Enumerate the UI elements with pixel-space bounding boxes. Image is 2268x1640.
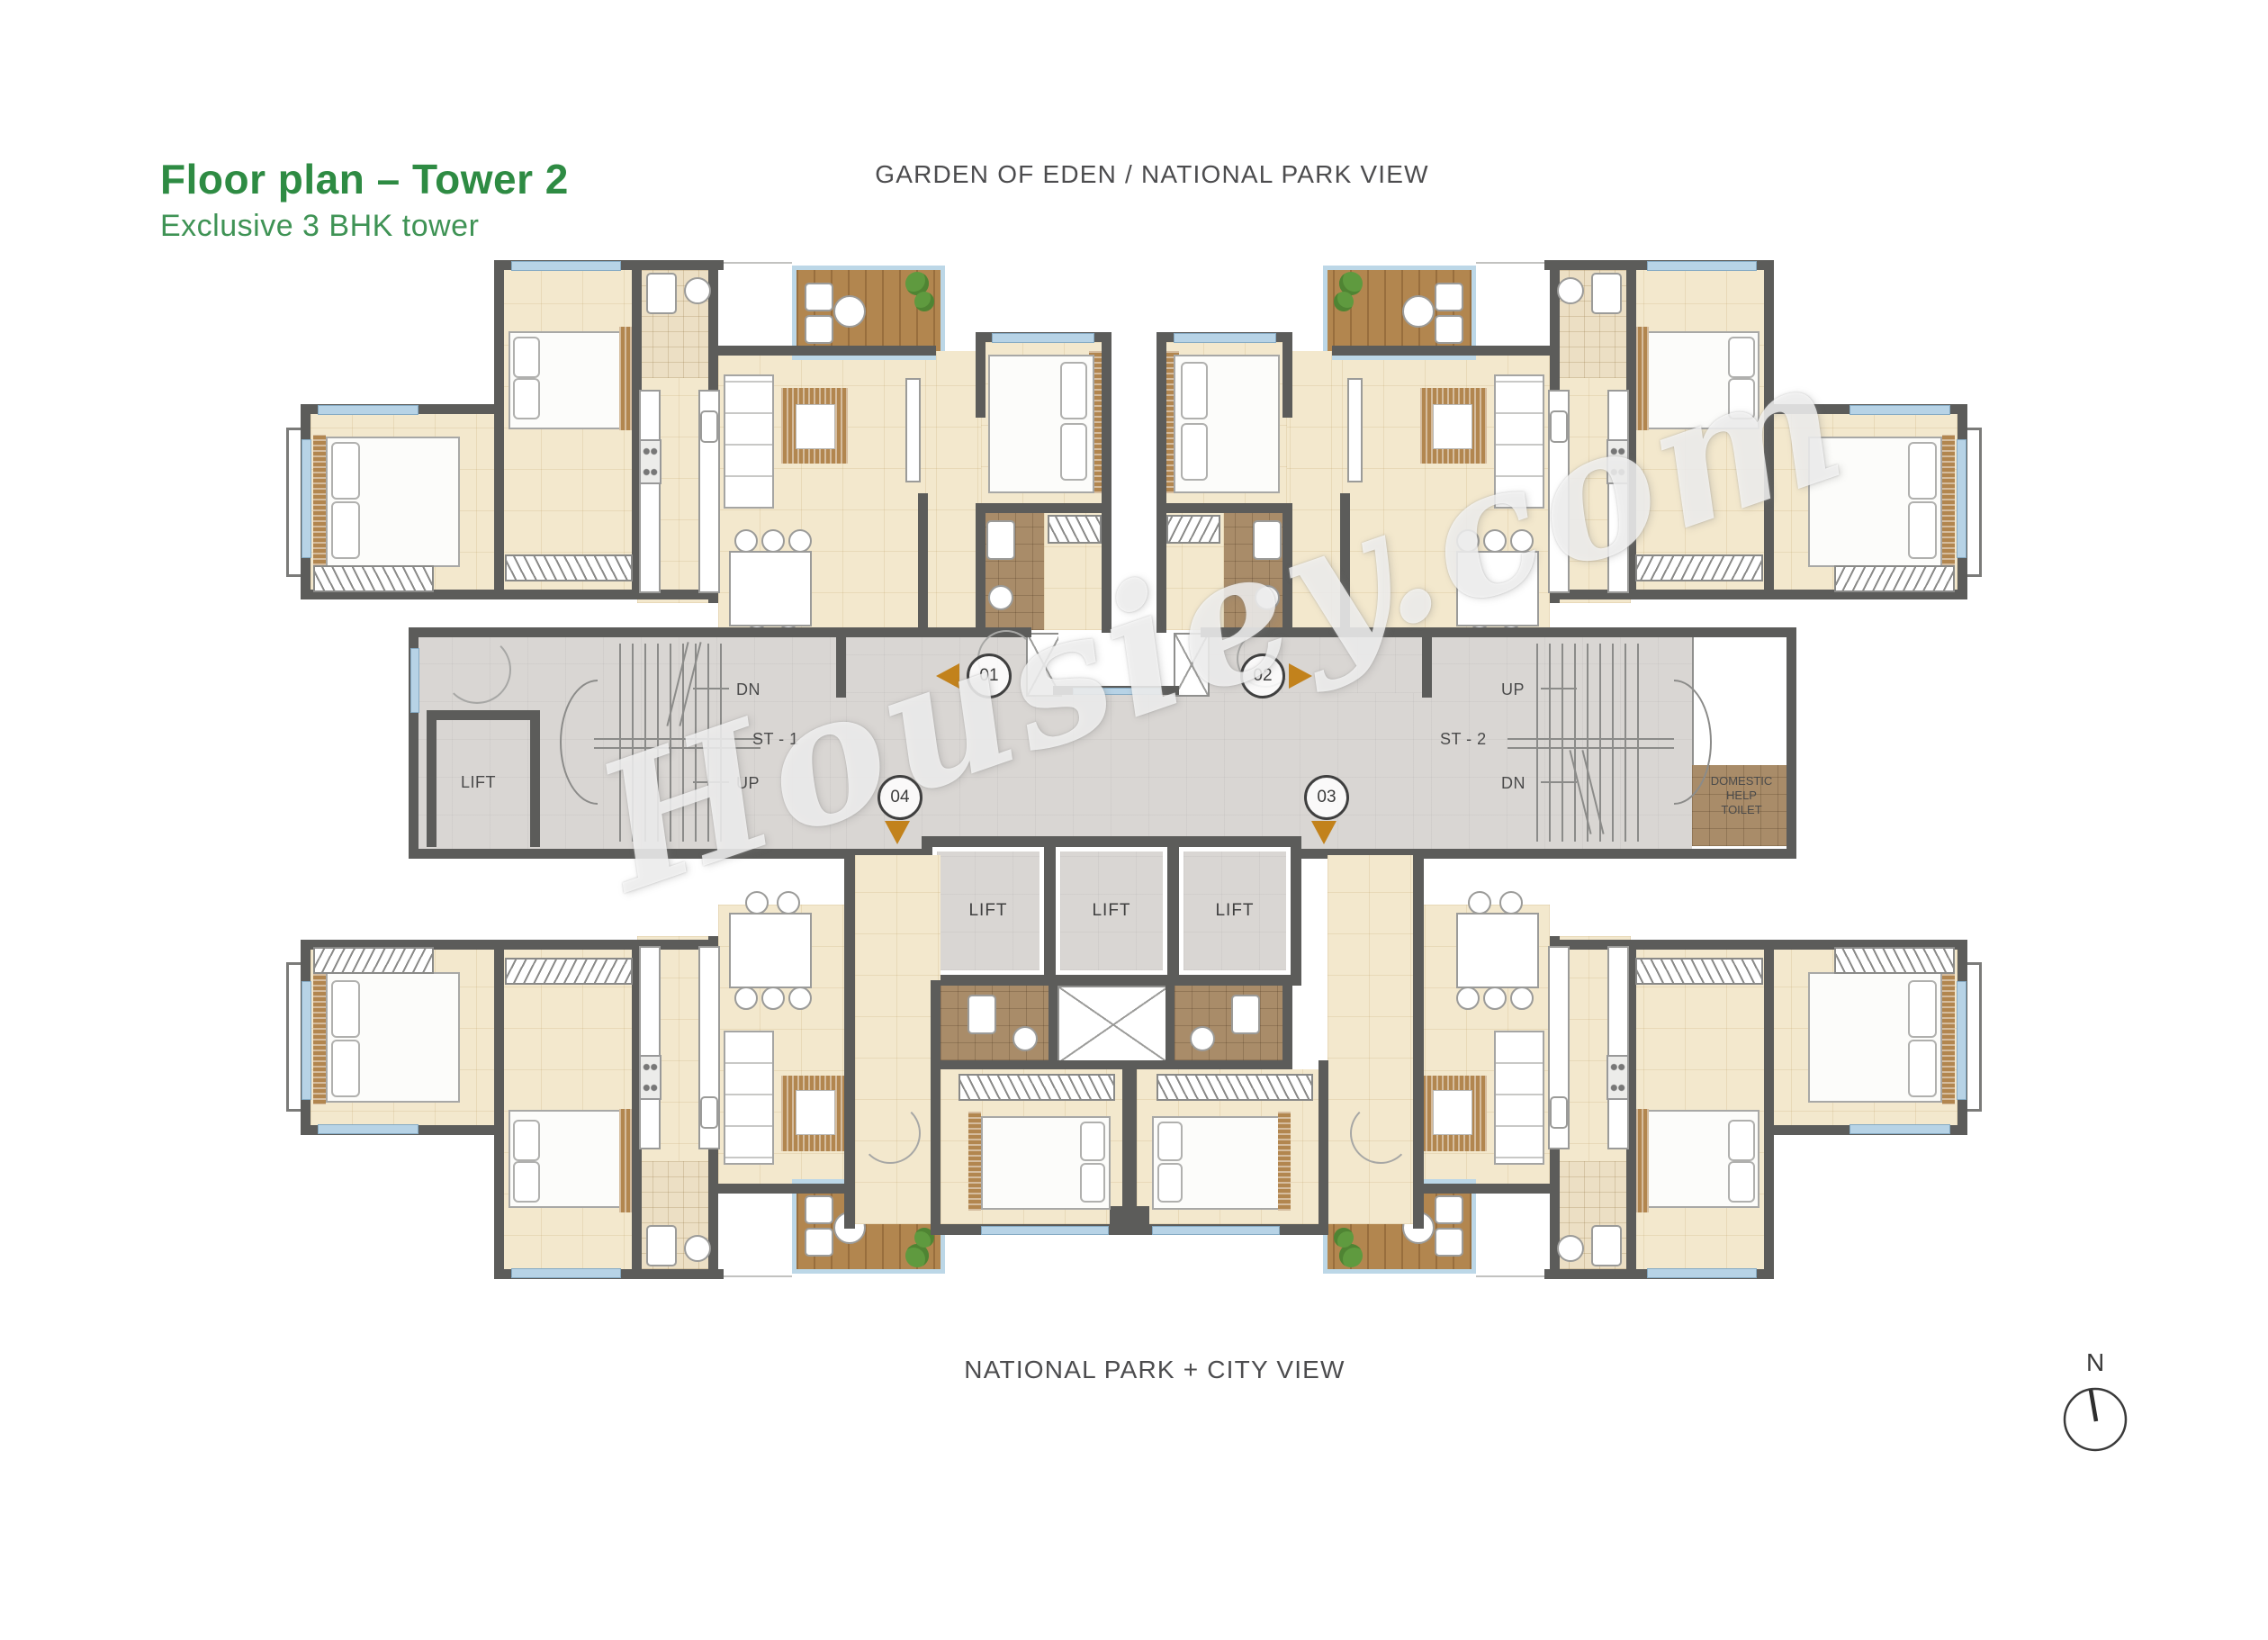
window: [1957, 981, 1966, 1100]
pillow: [331, 501, 360, 559]
sofa: [724, 374, 774, 509]
plant: [1334, 292, 1354, 311]
st1-dn-label: DN: [736, 681, 760, 698]
dining-chair: [1456, 529, 1480, 553]
unit-number: 02: [1253, 666, 1272, 686]
dining-chair: [1456, 987, 1480, 1010]
dining-table: [1456, 551, 1539, 626]
stove: [639, 439, 661, 484]
window: [511, 1268, 621, 1278]
wall: [427, 710, 540, 720]
deck-chair: [1435, 1228, 1463, 1257]
lift-shaft: LIFT: [1056, 847, 1167, 975]
lift-shaft: LIFT: [932, 847, 1044, 975]
deck-chair: [805, 1195, 833, 1224]
wall: [409, 849, 857, 859]
wall: [1764, 260, 1774, 599]
st2-label: ST - 2: [1440, 731, 1487, 747]
wall: [1764, 940, 1774, 1279]
lift-label: LIFT: [1092, 901, 1130, 921]
wall: [836, 627, 846, 698]
dining-chair: [1468, 891, 1491, 915]
window: [1849, 1124, 1950, 1134]
dining-chair: [1499, 891, 1523, 915]
bed-footboard: [1278, 1112, 1291, 1211]
deck-chair: [1435, 315, 1463, 344]
deck-chair: [805, 315, 833, 344]
unit-number: 01: [979, 666, 998, 686]
door-arc: [443, 635, 511, 704]
pillow: [1157, 1163, 1183, 1203]
window: [981, 1226, 1109, 1235]
bed-footboard: [619, 1109, 632, 1212]
unit-arrow-01: [936, 663, 959, 689]
wall: [1282, 332, 1292, 418]
dht-line2: HELP: [1692, 788, 1791, 803]
toilet: [1591, 273, 1622, 314]
window: [318, 1124, 418, 1134]
deck-chair: [805, 283, 833, 311]
sofa: [724, 1031, 774, 1165]
wall: [1550, 590, 1774, 599]
wall: [1786, 627, 1796, 859]
kitchen-sink: [700, 410, 718, 443]
pillow: [1728, 337, 1755, 378]
wardrobe: [1048, 515, 1102, 544]
wardrobe: [1166, 515, 1220, 544]
dining-chair: [1510, 987, 1534, 1010]
wall: [494, 940, 504, 1279]
duct-shaft: [1057, 986, 1169, 1064]
kitchen-counter: [639, 390, 661, 593]
toilet: [1231, 995, 1260, 1034]
dining-chair: [777, 891, 800, 915]
plant: [1334, 1228, 1354, 1248]
pillow: [331, 1040, 360, 1097]
toilet: [986, 520, 1015, 560]
kitchen-sink: [1550, 410, 1568, 443]
pillow: [1181, 362, 1208, 419]
kitchen-counter: [639, 946, 661, 1149]
pillow: [513, 378, 540, 419]
unit-number: 03: [1317, 788, 1336, 807]
stove: [639, 1055, 661, 1100]
wardrobe: [1834, 947, 1955, 974]
toilet: [1253, 520, 1282, 560]
pillow: [331, 980, 360, 1038]
wall: [1156, 503, 1292, 513]
bedroom-floor: [1631, 266, 1768, 594]
wall: [1282, 980, 1292, 1070]
lift-label: LIFT: [968, 901, 1007, 921]
wardrobe: [313, 565, 434, 592]
unit-arrow-04: [885, 821, 910, 844]
bed-headboard: [1942, 974, 1955, 1104]
door-arc: [859, 1103, 921, 1164]
duct-shaft: [1174, 633, 1210, 697]
lift-label: LIFT: [1215, 901, 1254, 921]
toilet-room: [1174, 986, 1282, 1060]
stair-landing: [594, 738, 760, 749]
lift-shaft: LIFT: [1179, 847, 1291, 975]
st2-dn-label: DN: [1501, 775, 1525, 791]
wardrobe: [313, 947, 434, 974]
washbasin: [1255, 585, 1280, 610]
bed-footboard: [619, 327, 632, 430]
bed-footboard: [1636, 327, 1649, 430]
wall: [1332, 346, 1560, 356]
unit-marker-02: 02: [1240, 653, 1285, 698]
coffee-table-top: [1433, 404, 1472, 449]
foyer-floor: [1287, 351, 1332, 635]
deck-table: [1402, 295, 1435, 328]
wardrobe: [1156, 1074, 1313, 1101]
balcony-sill-line: [1476, 1275, 1544, 1277]
dining-chair: [788, 529, 812, 553]
wall: [844, 855, 855, 1229]
window: [1174, 333, 1276, 343]
apartment-wing-bottom-left: [286, 905, 936, 1370]
st1-up-label: UP: [736, 775, 760, 791]
dining-chair: [761, 529, 785, 553]
wall: [1426, 627, 1796, 637]
wall: [494, 590, 718, 599]
stair-arrow: [693, 688, 729, 689]
dht-line1: DOMESTIC: [1692, 774, 1791, 788]
kitchen-counter: [1607, 390, 1629, 593]
foyer-floor: [855, 855, 940, 1224]
wardrobe: [958, 1074, 1115, 1101]
washbasin: [1012, 1026, 1038, 1051]
plant: [914, 292, 934, 311]
wall: [427, 710, 436, 847]
apartment-wing-top-left: [286, 169, 936, 635]
wall: [1422, 627, 1432, 698]
tv-unit: [1347, 378, 1363, 482]
wall: [931, 980, 940, 1070]
dining-table: [1456, 913, 1539, 988]
wardrobe: [1635, 958, 1763, 985]
washbasin: [1557, 1235, 1584, 1262]
wall: [1282, 503, 1292, 635]
window: [1957, 439, 1966, 558]
wall: [1340, 493, 1350, 635]
dining-chair: [734, 529, 758, 553]
toilet: [967, 995, 996, 1034]
dining-chair: [788, 987, 812, 1010]
sofa: [1494, 374, 1544, 509]
unit-marker-03: 03: [1304, 775, 1349, 820]
stair-landing: [1507, 738, 1674, 749]
bedroom-floor: [499, 266, 637, 594]
wardrobe: [505, 554, 633, 581]
wall: [976, 503, 985, 635]
dining-chair: [1510, 529, 1534, 553]
wall: [1201, 627, 1436, 637]
washbasin: [684, 1235, 711, 1262]
kitchen-counter: [1607, 946, 1629, 1149]
pillow: [1908, 1040, 1937, 1097]
wall: [708, 346, 936, 356]
window: [1152, 1226, 1280, 1235]
dining-chair: [1483, 987, 1507, 1010]
tv-unit: [905, 378, 921, 482]
wall: [1156, 332, 1166, 635]
washbasin: [1190, 1026, 1215, 1051]
st1-label: ST - 1: [752, 731, 799, 747]
pillow: [513, 1120, 540, 1161]
unit-marker-04: 04: [877, 775, 922, 820]
toilet: [646, 1225, 677, 1266]
pillow: [1080, 1163, 1105, 1203]
bed-headboard: [313, 974, 326, 1104]
wall: [931, 1060, 940, 1235]
unit-marker-01: 01: [967, 653, 1012, 698]
wall: [1048, 980, 1057, 1070]
washbasin: [684, 277, 711, 304]
pillow: [1908, 501, 1937, 559]
stair-arrow: [693, 781, 729, 783]
window: [301, 439, 311, 558]
floor-plan-page: Floor plan – Tower 2 Exclusive 3 BHK tow…: [0, 0, 2268, 1640]
wall: [494, 260, 504, 599]
pillow: [1080, 1122, 1105, 1161]
coffee-table-top: [1433, 1090, 1472, 1135]
stair-arrow: [1541, 688, 1577, 689]
pillow: [1728, 1161, 1755, 1203]
deck-chair: [805, 1228, 833, 1257]
dining-table: [729, 913, 812, 988]
balcony-sill-line: [724, 262, 792, 264]
wall: [918, 493, 928, 635]
window: [1849, 405, 1950, 415]
unit-arrow-03: [1311, 821, 1336, 844]
unit-arrow-02: [1289, 663, 1312, 689]
door-arc: [1350, 1103, 1411, 1164]
wall: [976, 503, 1111, 513]
bed-footboard: [1636, 1109, 1649, 1212]
balcony-sill-line: [724, 1275, 792, 1277]
window: [318, 405, 418, 415]
pillow: [1157, 1122, 1183, 1161]
foyer-floor: [936, 351, 981, 635]
kitchen-sink: [1550, 1096, 1568, 1129]
wall: [1426, 849, 1796, 859]
pillow: [1728, 378, 1755, 419]
sofa: [1494, 1031, 1544, 1165]
wall: [1550, 940, 1774, 950]
washbasin: [1557, 277, 1584, 304]
pillow: [1060, 362, 1087, 419]
window: [410, 648, 419, 713]
centre-unit-top-right: [1107, 169, 1332, 635]
window: [992, 333, 1094, 343]
dining-chair: [1483, 529, 1507, 553]
compass-needle: [2091, 1390, 2096, 1421]
pillow: [1181, 423, 1208, 481]
pillow: [1728, 1120, 1755, 1161]
balcony-sill-line: [1476, 262, 1544, 264]
dht-line3: TOILET: [1692, 803, 1791, 817]
deck-chair: [1435, 1195, 1463, 1224]
wall: [931, 1060, 1292, 1069]
domestic-help-toilet-label: DOMESTIC HELP TOILET: [1692, 774, 1791, 817]
foyer-floor: [1327, 855, 1413, 1224]
window: [301, 981, 311, 1100]
bed-headboard: [313, 435, 326, 565]
stair-arrow: [1541, 781, 1577, 783]
bed-headboard: [1942, 435, 1955, 565]
pillow: [1908, 442, 1937, 500]
wall: [1413, 855, 1424, 1229]
pillow: [331, 442, 360, 500]
pillow: [1908, 980, 1937, 1038]
lobby-window: [1073, 688, 1161, 695]
kitchen-sink: [700, 1096, 718, 1129]
bed-footboard: [968, 1112, 981, 1211]
toilet: [646, 273, 677, 314]
stove: [1606, 439, 1629, 484]
dining-chair: [745, 891, 769, 915]
window: [1647, 261, 1757, 271]
lift-label: LIFT: [461, 774, 496, 790]
corridor-floor: [846, 693, 1431, 853]
window: [1647, 1268, 1757, 1278]
deck-table: [833, 295, 866, 328]
wall: [976, 332, 985, 418]
pillow: [513, 1161, 540, 1203]
north-label: N: [2086, 1348, 2104, 1376]
wall: [494, 940, 718, 950]
apartment-wing-top-right: [1332, 169, 1982, 635]
wardrobe: [505, 958, 633, 985]
wardrobe: [1635, 554, 1763, 581]
st2-up-label: UP: [1501, 681, 1525, 698]
wardrobe: [1834, 565, 1955, 592]
pillow: [1060, 423, 1087, 481]
unit-number: 04: [890, 788, 909, 807]
wall: [530, 710, 540, 847]
wall: [1165, 980, 1174, 1070]
dining-chair: [761, 987, 785, 1010]
dining-chair: [734, 987, 758, 1010]
deck-chair: [1435, 283, 1463, 311]
entrance-lobby: [1058, 633, 1174, 693]
toilet: [1591, 1225, 1622, 1266]
window: [511, 261, 621, 271]
stove: [1606, 1055, 1629, 1100]
coffee-table-top: [796, 404, 835, 449]
washbasin: [988, 585, 1013, 610]
pillow: [513, 337, 540, 378]
dining-table: [729, 551, 812, 626]
apartment-wing-bottom-right: [1332, 905, 1982, 1370]
coffee-table-top: [796, 1090, 835, 1135]
north-compass: N: [2043, 1337, 2160, 1463]
wall: [1318, 1060, 1328, 1235]
